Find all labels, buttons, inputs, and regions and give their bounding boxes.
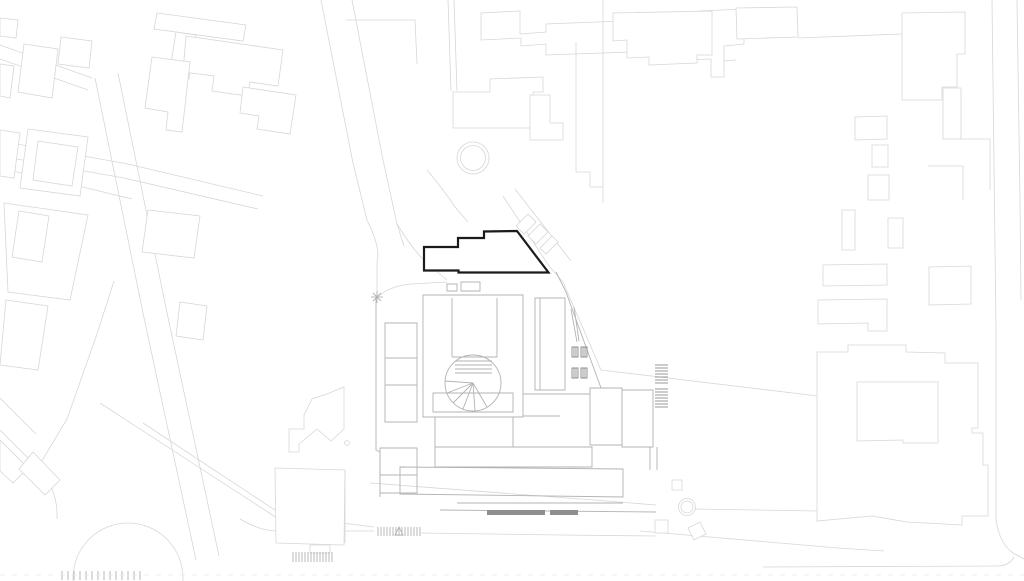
site-building-complex-shape	[556, 272, 601, 388]
site-building-complex-shape	[574, 307, 579, 341]
context-buildings-shape	[154, 13, 246, 41]
context-buildings	[0, 0, 990, 553]
site-dark-fills-shape	[487, 510, 545, 515]
site-dark-details-shape	[581, 347, 587, 357]
site-building-complex-shape	[376, 297, 380, 497]
streets-and-ground-shape	[448, 0, 451, 91]
site-building-complex-shape	[463, 383, 473, 409]
streets-and-ground-shape	[421, 533, 656, 536]
context-buildings-shape	[12, 211, 49, 262]
site-building-complex-shape	[590, 388, 622, 445]
context-buildings-shape	[540, 236, 558, 254]
site-dark-fills-shape	[550, 510, 578, 515]
site-building-complex	[62, 272, 657, 580]
streets-and-ground-circle	[345, 441, 350, 446]
streets-and-ground-circle	[461, 146, 486, 171]
site-building-complex-shape	[473, 383, 487, 407]
context-buildings-shape	[183, 36, 283, 96]
context-buildings-shape	[855, 116, 887, 140]
streets-and-ground-shape	[367, 220, 378, 297]
context-buildings-shape	[929, 266, 971, 305]
site-building-complex-shape	[447, 284, 457, 291]
streets-and-ground-shape	[454, 0, 457, 91]
streets-and-ground-shape	[763, 557, 1014, 567]
context-buildings-shape	[33, 141, 78, 186]
context-buildings-shape	[0, 300, 48, 370]
site-building-complex-shape	[622, 390, 653, 447]
context-buildings-shape	[142, 210, 200, 258]
streets-and-ground-shape	[321, 0, 367, 220]
streets-and-ground-shape	[352, 0, 404, 246]
context-buildings-shape	[576, 42, 603, 187]
site-building-complex-shape	[423, 295, 523, 417]
site-dark-details	[572, 347, 668, 407]
streets-and-ground-shape	[427, 170, 468, 222]
streets-and-ground-shape	[601, 370, 818, 396]
streets-and-ground-shape	[376, 282, 447, 298]
site-building-complex-shape	[461, 282, 480, 291]
site-building-complex-shape	[440, 510, 656, 512]
streets-and-ground-shape	[100, 403, 277, 518]
site-building-complex-shape	[473, 383, 475, 411]
context-buildings-shape	[0, 18, 18, 38]
streets-and-ground-shape	[503, 196, 601, 370]
context-buildings-shape	[872, 145, 888, 167]
context-buildings-shape	[18, 44, 58, 98]
context-buildings-shape	[453, 77, 543, 128]
context-buildings-shape	[0, 130, 20, 178]
context-buildings-shape	[0, 440, 28, 483]
site-dark-details-shape	[581, 368, 587, 378]
context-buildings-shape	[888, 218, 903, 248]
streets-and-ground-shape	[346, 20, 417, 64]
context-buildings-shape	[688, 522, 706, 540]
streets-and-ground-shape	[0, 398, 36, 434]
site-building-complex-shape	[447, 383, 473, 393]
context-buildings-shape	[823, 264, 887, 286]
context-buildings-shape	[655, 520, 668, 533]
context-buildings-shape	[176, 302, 207, 340]
site-dark-details-shape	[572, 347, 578, 357]
context-buildings-shape	[961, 139, 990, 190]
context-buildings-shape	[145, 57, 190, 132]
context-buildings-shape	[736, 7, 798, 39]
context-buildings-shape	[943, 88, 961, 139]
context-buildings-shape	[613, 11, 712, 65]
context-buildings-shape	[530, 95, 563, 140]
context-buildings-shape	[240, 87, 296, 134]
streets-and-ground-circle	[681, 501, 693, 513]
site-building-complex-shape	[445, 381, 473, 383]
site-building-complex-shape	[385, 323, 417, 422]
streets-and-ground-shape	[143, 423, 293, 522]
site-dark-fills	[487, 510, 578, 515]
site-building-complex-shape	[435, 447, 592, 467]
context-buildings-shape	[58, 37, 92, 68]
site-building-complex-shape	[400, 467, 623, 497]
streets-and-ground-shape	[695, 509, 817, 511]
context-buildings-shape	[902, 12, 965, 100]
site-dark-details-shape	[572, 368, 578, 378]
streets-and-ground-shape	[640, 531, 884, 551]
context-buildings-shape	[672, 480, 682, 490]
context-buildings-shape	[857, 382, 938, 443]
context-buildings-shape	[275, 468, 345, 545]
context-buildings-shape	[19, 452, 60, 495]
context-buildings-shape	[842, 210, 855, 250]
site-building-complex-shape	[535, 298, 565, 390]
context-buildings-shape	[928, 166, 963, 200]
site-plan-canvas	[0, 0, 1024, 581]
context-buildings-shape	[310, 545, 330, 553]
site-building-complex-shape	[433, 393, 513, 412]
streets-and-ground-shape	[798, 34, 902, 38]
streets-and-ground-shape	[1017, 0, 1021, 300]
context-buildings-shape	[0, 64, 14, 98]
context-buildings-shape	[289, 387, 344, 452]
context-buildings-shape	[818, 299, 887, 331]
context-buildings-shape	[868, 175, 889, 200]
site-plan-drawing	[0, 0, 1024, 581]
streets-and-ground-circle	[457, 142, 489, 174]
streets-and-ground-shape	[992, 0, 1024, 559]
